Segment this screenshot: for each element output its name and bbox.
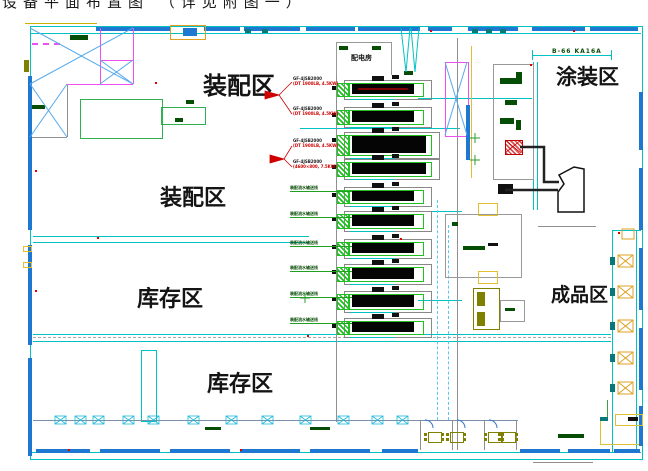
annotation-leader-lines [265,82,292,167]
fan-unit-boxes [618,229,634,394]
hopper-symbols [401,28,419,72]
office-door-arcs [425,420,497,428]
spray-booth-x [505,140,521,153]
exhaust-duct [505,147,559,190]
cyclone-hopper [558,167,584,212]
linework-overlay [0,0,648,471]
door-x-symbols [55,416,408,424]
cross-brace-lines [30,28,467,137]
green-plus-marks [300,133,480,303]
floorplan-canvas: 设备平面布置图 （详见附图一） 装配区 装配区 库存区 库存区 涂装区 成品区 … [0,0,648,471]
